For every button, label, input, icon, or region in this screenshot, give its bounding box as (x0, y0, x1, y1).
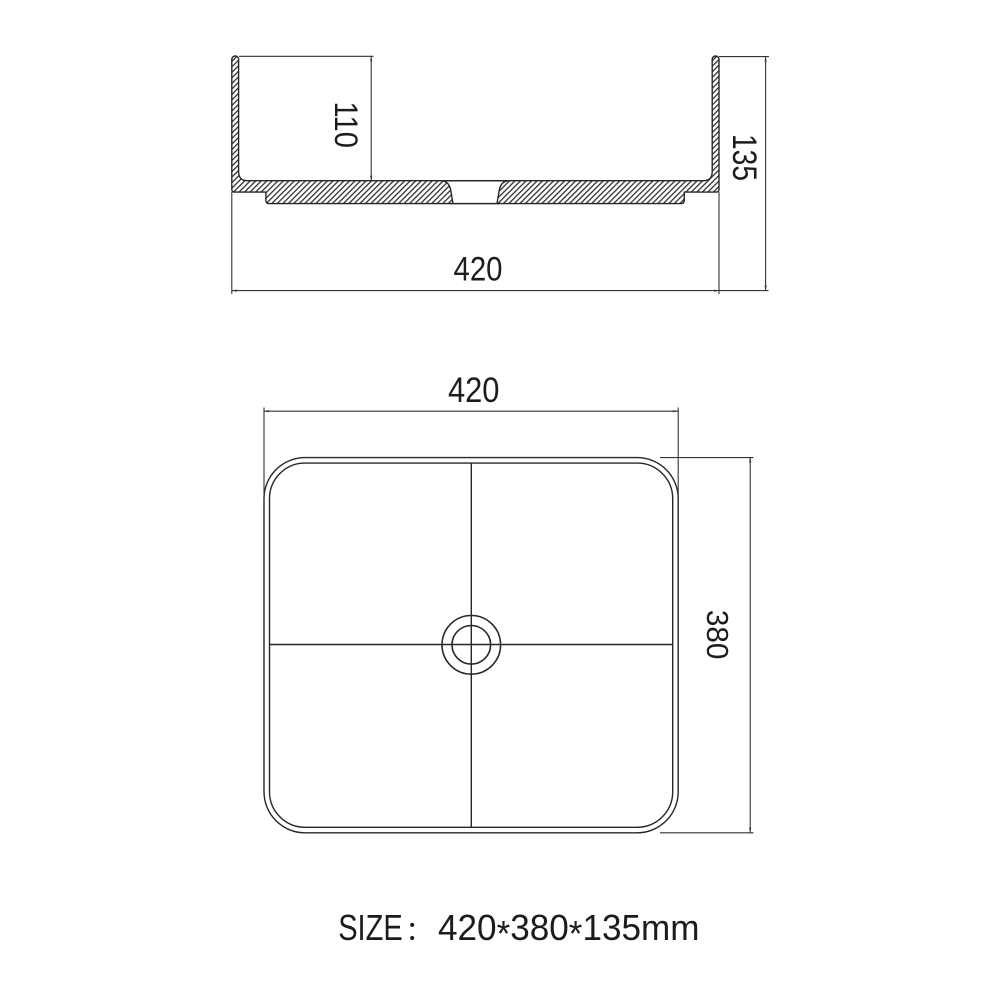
svg-text:420: 420 (448, 371, 500, 410)
svg-text:420*380*135mm: 420*380*135mm (438, 907, 700, 954)
svg-text:SIZE: SIZE (338, 907, 403, 948)
svg-text:135: 135 (725, 134, 763, 181)
svg-text:420: 420 (454, 251, 503, 289)
svg-text:110: 110 (328, 101, 364, 148)
svg-text:380: 380 (700, 610, 735, 660)
